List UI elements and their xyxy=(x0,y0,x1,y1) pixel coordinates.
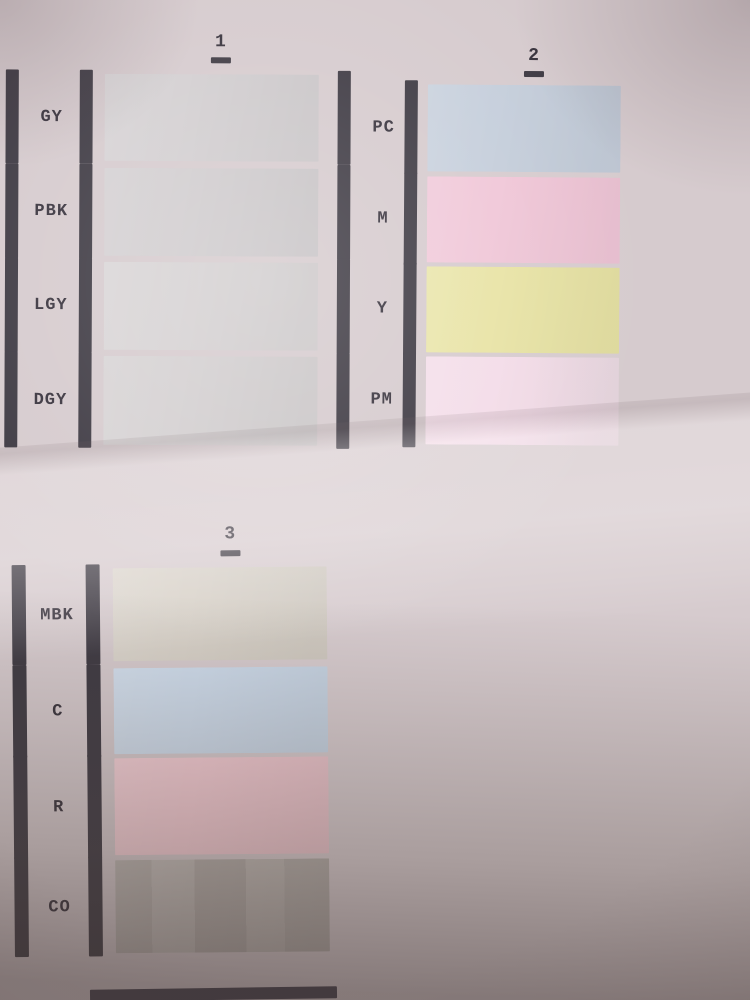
section-number-underline xyxy=(220,550,240,556)
nozzle-check-test-page-photo: 1GYPBKLGYDGY2PCMYPM3MBKCRCO xyxy=(0,0,750,1000)
ink-bar-segment xyxy=(86,664,101,757)
ink-label-r: R xyxy=(53,799,64,816)
ink-swatch-co xyxy=(115,858,330,953)
ink-bar-segment xyxy=(13,755,28,859)
ink-label-mbk: MBK xyxy=(40,607,74,624)
ink-swatch-r xyxy=(114,756,329,855)
ink-bar-segment xyxy=(14,857,29,957)
ink-swatch-c xyxy=(113,666,328,754)
ink-swatch-mbk xyxy=(113,566,328,661)
ink-bar-segment xyxy=(88,856,103,956)
ink-label-c: C xyxy=(52,703,63,720)
pattern-section-3: 3MBKCRCO xyxy=(0,0,750,1000)
section-number-3: 3 xyxy=(224,525,235,543)
ink-bar-segment xyxy=(12,665,27,758)
ink-bar-segment xyxy=(86,564,101,664)
ink-label-co: CO xyxy=(48,899,71,916)
ink-bar-segment xyxy=(87,754,102,858)
ink-bar-segment xyxy=(12,565,27,665)
cutoff-ink-bar xyxy=(90,986,337,1000)
